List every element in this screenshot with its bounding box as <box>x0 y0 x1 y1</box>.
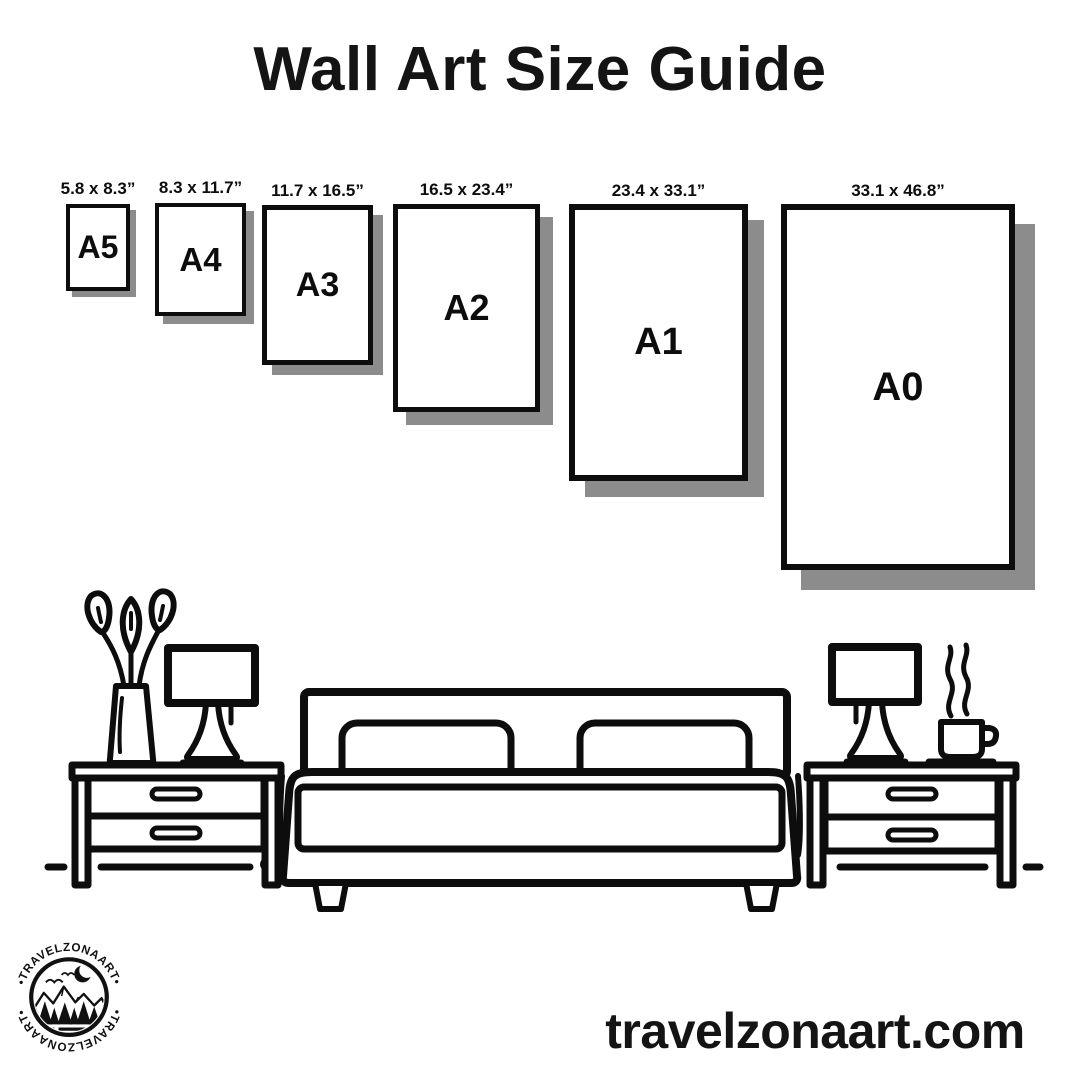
nightstand-leg <box>1000 765 1013 885</box>
website-url: travelzonaart.com <box>560 1002 1070 1060</box>
nightstand-leg <box>810 765 823 885</box>
vase-highlight <box>120 698 122 752</box>
table-lamp-icon <box>168 648 255 763</box>
cup-body <box>941 722 982 757</box>
bed-leg <box>315 883 346 909</box>
flower-vase-icon <box>87 591 173 763</box>
vase-body <box>110 686 153 763</box>
brand-logo: •TRAVELZONAART• •TRAVELZONAART• <box>6 932 132 1058</box>
double-bed-icon <box>263 692 817 909</box>
steam-icon <box>964 645 969 714</box>
lamp-shade <box>168 648 255 703</box>
nightstand-leg <box>75 765 88 885</box>
nightstand-top <box>72 765 281 778</box>
bedroom-illustration <box>0 0 1080 1080</box>
lamp-shade <box>832 647 918 702</box>
nightstand-leg <box>265 765 278 885</box>
coffee-cup-icon <box>929 645 996 762</box>
stem <box>101 630 124 686</box>
poster: Wall Art Size Guide 5.8 x 8.3” A5 8.3 x … <box>0 0 1080 1080</box>
nightstand-top <box>807 765 1016 778</box>
steam-icon <box>948 647 953 716</box>
bed-rail <box>298 787 782 849</box>
bed-leg <box>746 883 777 909</box>
table-lamp-icon <box>832 647 918 762</box>
stem <box>139 628 160 686</box>
